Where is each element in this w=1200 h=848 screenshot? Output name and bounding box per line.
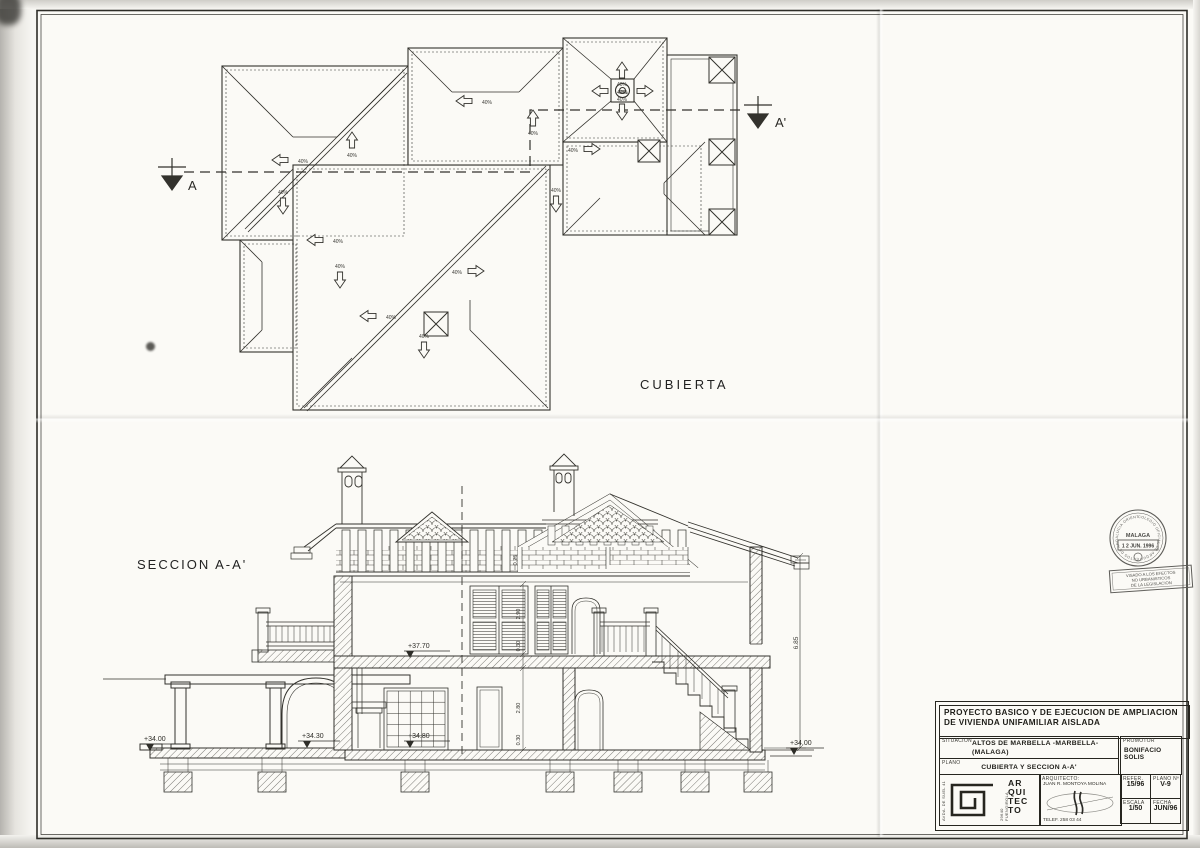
refer-label: REFER. xyxy=(1123,776,1143,782)
reference-grid: REFER. 15/96 PLANO Nº V-9 ESCALA 1/50 FE… xyxy=(1120,774,1180,824)
roof-slope-label: 40% xyxy=(617,90,628,96)
situacion-value-line2: (MALAGA) xyxy=(972,749,1009,756)
roof-slope-label: 40% xyxy=(335,264,346,270)
dim-lower-slab: 0.30 xyxy=(516,735,522,746)
paper-fold-horizontal xyxy=(36,414,1188,423)
dim-rafter: 0.25 xyxy=(513,555,519,566)
plano-num-cell: PLANO Nº V-9 xyxy=(1150,774,1181,799)
level-value: +37.70 xyxy=(408,643,430,650)
plano-num-label: PLANO Nº xyxy=(1153,776,1179,782)
promotor-value: BONIFACIO SOLIS xyxy=(1124,747,1181,761)
telefono: TELEF. 258 03 44 xyxy=(1043,818,1081,823)
section-marker-a-prime-label: A' xyxy=(775,115,786,130)
roof-slope-label: 40% xyxy=(298,159,309,165)
refer-value: 15/96 xyxy=(1121,781,1150,788)
roof-slope-label: 40% xyxy=(278,190,289,196)
fecha-value: JUN/96 xyxy=(1151,805,1180,812)
escala-cell: ESCALA 1/50 xyxy=(1120,798,1151,824)
roof-slope-label: 40% xyxy=(452,270,463,276)
level-marker-right-ground: +34.00 xyxy=(786,740,824,755)
refer-cell: REFER. 15/96 xyxy=(1120,774,1151,799)
roof-slope-label: 40% xyxy=(419,334,430,340)
dim-lower-room: 2.80 xyxy=(516,703,522,714)
section-linework: +34.00 +34.30 +34.80 +37.70 xyxy=(103,454,824,792)
roof-plan-linework: A A' 40% xyxy=(158,38,786,411)
dim-upper-slab: 0.30 xyxy=(516,641,522,652)
fecha-cell: FECHA JUN/96 xyxy=(1150,798,1181,824)
project-title-box: PROYECTO BASICO Y DE EJECUCION DE AMPLIA… xyxy=(939,705,1190,739)
plano-label: PLANO xyxy=(942,760,960,766)
roof-slope-label: 40% xyxy=(386,315,397,321)
roof-slope-label: 40% xyxy=(347,153,358,159)
roof-slope-label: 40% xyxy=(482,100,493,106)
roof-plan-title: CUBIERTA xyxy=(640,377,729,392)
architect-spiral-logo-icon xyxy=(949,782,997,818)
architect-logo-box: AVDA. DE SUEL 41 29640 FUENGIROLA AR QUI… xyxy=(939,774,1041,826)
paper-fold-vertical xyxy=(876,9,884,837)
level-value: +34.00 xyxy=(144,736,166,743)
wordmark-line: TO xyxy=(1008,806,1028,815)
plano-num-value: V-9 xyxy=(1151,781,1180,788)
title-block: PROYECTO BASICO Y DE EJECUCION DE AMPLIA… xyxy=(935,701,1189,831)
roof-slope-label: 40% xyxy=(568,148,579,154)
situacion-value-line1: ALTOS DE MARBELLA -MARBELLA- xyxy=(972,740,1098,747)
visa-box-stamp: VISADO A LOS EFECTOS NO URBANISTICOS DE … xyxy=(1109,565,1192,593)
roof-slope-label: 40% xyxy=(333,239,344,245)
upper-floor-openings xyxy=(470,586,600,654)
section-chimneys xyxy=(338,454,578,524)
architectural-drawing-sheet: A A' 40% xyxy=(0,0,1200,848)
plano-value: CUBIERTA Y SECCION A-A' xyxy=(940,764,1118,771)
project-title-line1: PROYECTO BASICO Y DE EJECUCION DE AMPLIA… xyxy=(944,708,1185,718)
architect-info-box: ARQUITECTO: JUAN R. MONTOYA MOLINA TELEF… xyxy=(1039,774,1122,826)
stamp-visa-date: 1 2 JUN. 1996 xyxy=(1122,544,1154,550)
level-value: +34.80 xyxy=(408,733,430,740)
roof-slope-label: 40% xyxy=(551,188,562,194)
fecha-label: FECHA xyxy=(1153,800,1171,806)
level-marker-ground-floor: +34.80 xyxy=(404,733,450,748)
foundations xyxy=(140,744,814,792)
plano-box: PLANO CUBIERTA Y SECCION A-A' xyxy=(939,758,1119,775)
section-title: SECCION A-A' xyxy=(137,557,247,572)
section-marker-a-label: A xyxy=(188,178,197,193)
escala-value: 1/50 xyxy=(1121,805,1150,812)
dim-upper-room: 2.90 xyxy=(516,609,522,620)
level-value: +34.00 xyxy=(790,740,812,747)
level-value: +34.30 xyxy=(302,733,324,740)
promotor-box: PROMOTOR BONIFACIO SOLIS xyxy=(1120,736,1182,775)
stamp-city: MALAGA xyxy=(1126,533,1150,539)
staircase xyxy=(592,608,750,750)
promotor-label: PROMOTOR xyxy=(1123,738,1155,744)
address-vertical-text: AVDA. DE SUEL 41 xyxy=(941,779,946,821)
project-title-line2: DE VIVIENDA UNIFAMILIAR AISLADA xyxy=(944,718,1185,728)
architect-signature xyxy=(1044,790,1116,816)
roof-slope-label: 40% xyxy=(528,131,539,137)
roof-structure xyxy=(291,494,809,576)
situacion-label: SITUACION xyxy=(942,738,972,744)
escala-label: ESCALA xyxy=(1123,800,1145,806)
dim-total-height: 6.85 xyxy=(793,636,800,649)
roof-slope-label: 40% xyxy=(617,82,628,88)
architect-wordmark: AR QUI TEC TO xyxy=(1008,779,1028,815)
situacion-box: SITUACION ALTOS DE MARBELLA -MARBELLA- (… xyxy=(939,736,1119,759)
arquitecto-name: JUAN R. MONTOYA MOLINA xyxy=(1043,782,1106,787)
roof-slope-label: 40% xyxy=(617,97,628,103)
